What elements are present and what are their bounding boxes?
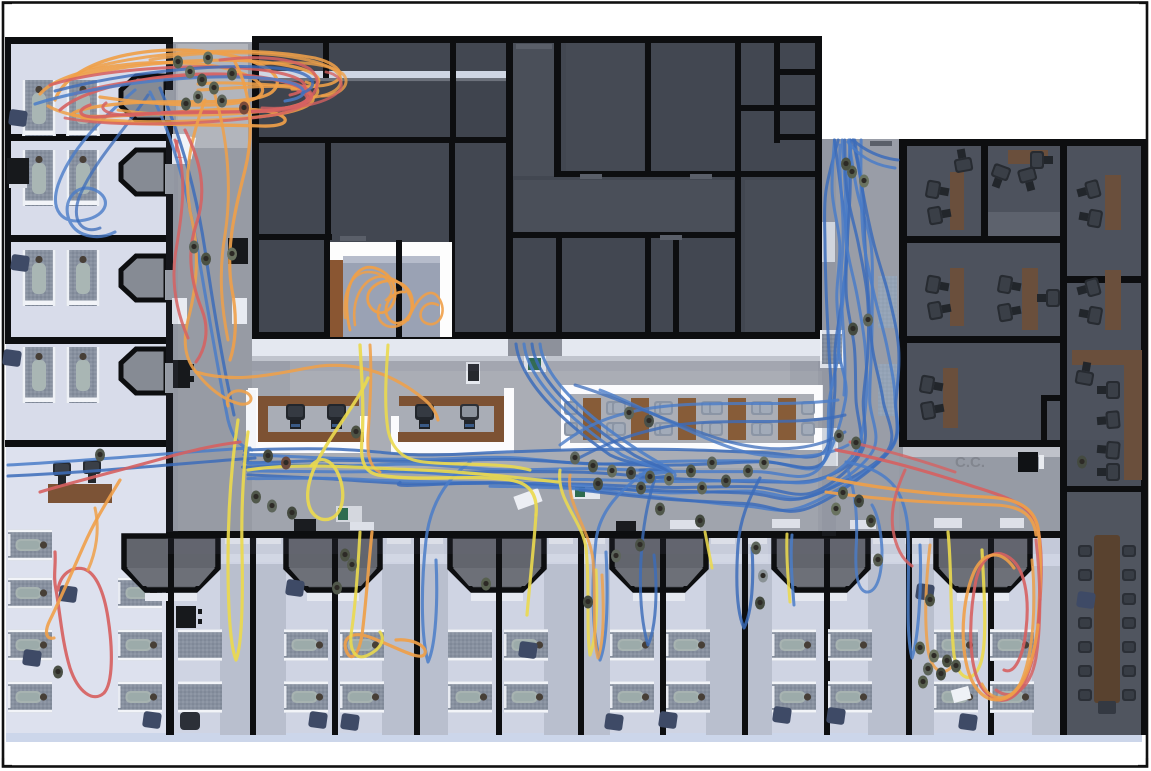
svg-text:C.C.: C.C.	[955, 454, 985, 471]
